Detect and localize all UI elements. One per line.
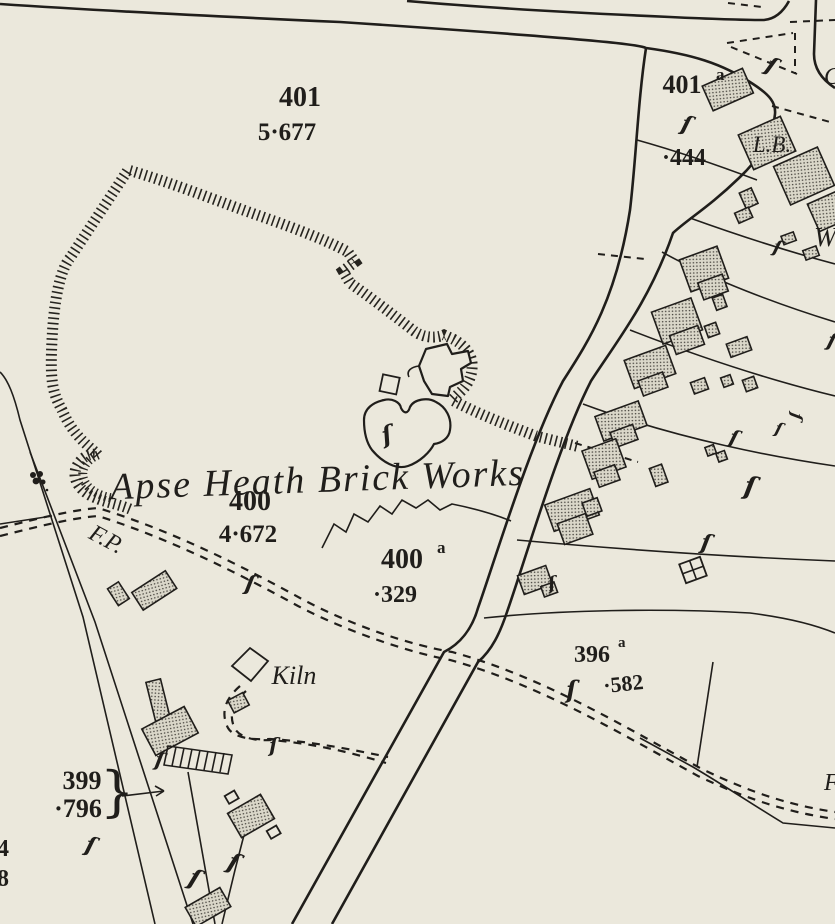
label-acreage-401: 5·677	[258, 119, 316, 146]
label-parcel-400a-sup: a	[437, 538, 446, 557]
label-acreage-329: ·329	[373, 582, 417, 608]
label-parcel-396a-sup: a	[618, 635, 626, 651]
edge-label-f: F	[823, 770, 835, 796]
label-parcel-401a-sup: a	[716, 65, 725, 84]
map-canvas: ſ ſ ſ ſ ſ ſ ſ ſ ſ ſ ſ ſ ſ ſ ſ ſ ſ ſ Apse…	[0, 0, 835, 924]
label-parcel-400: 400	[229, 486, 271, 517]
outbuilding	[705, 445, 717, 457]
label-kiln: Kiln	[271, 661, 317, 690]
label-letter-box: L.B.	[752, 132, 791, 157]
label-parcel-400a: 400	[381, 544, 423, 575]
outbuilding	[721, 375, 734, 388]
brace-399: }	[100, 760, 134, 823]
edge-label-8: 8	[0, 866, 9, 892]
label-acreage-582: ·582	[602, 669, 645, 698]
os-map-sheet: ſ ſ ſ ſ ſ ſ ſ ſ ſ ſ ſ ſ ſ ſ ſ ſ ſ ſ Apse…	[0, 0, 835, 924]
label-parcel-401: 401	[279, 82, 321, 113]
label-acreage-400: 4·672	[219, 521, 277, 548]
label-parcel-399: 399	[63, 766, 102, 795]
edge-label-w: W	[814, 222, 835, 252]
edge-label-c: C	[824, 64, 835, 90]
label-parcel-396a: 396	[574, 642, 610, 668]
outbuilding	[716, 451, 728, 463]
small-pit	[380, 374, 400, 394]
label-acreage-796: ·796	[54, 794, 102, 823]
label-parcel-401a: 401	[663, 70, 702, 99]
edge-label-4: 4	[0, 836, 9, 862]
label-acreage-444: ·444	[662, 145, 706, 171]
